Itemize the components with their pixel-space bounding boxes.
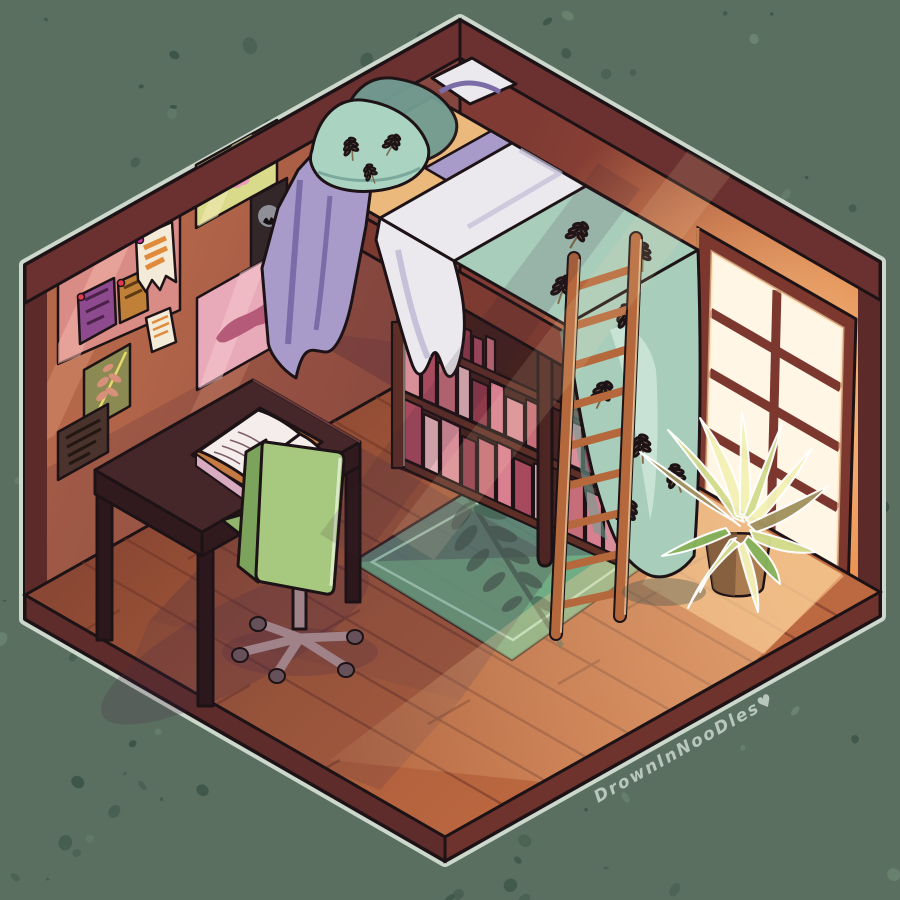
scene-illustration: DrownInNooDles♥ xyxy=(0,0,900,900)
plant-shadow xyxy=(622,578,706,606)
desk-leg xyxy=(97,488,112,640)
push-pin xyxy=(78,294,85,301)
desk-leg xyxy=(198,548,213,706)
right-wall-edge xyxy=(858,262,880,604)
chair-column xyxy=(293,585,306,629)
push-pin xyxy=(118,280,125,287)
left-wall-edge xyxy=(25,265,47,610)
